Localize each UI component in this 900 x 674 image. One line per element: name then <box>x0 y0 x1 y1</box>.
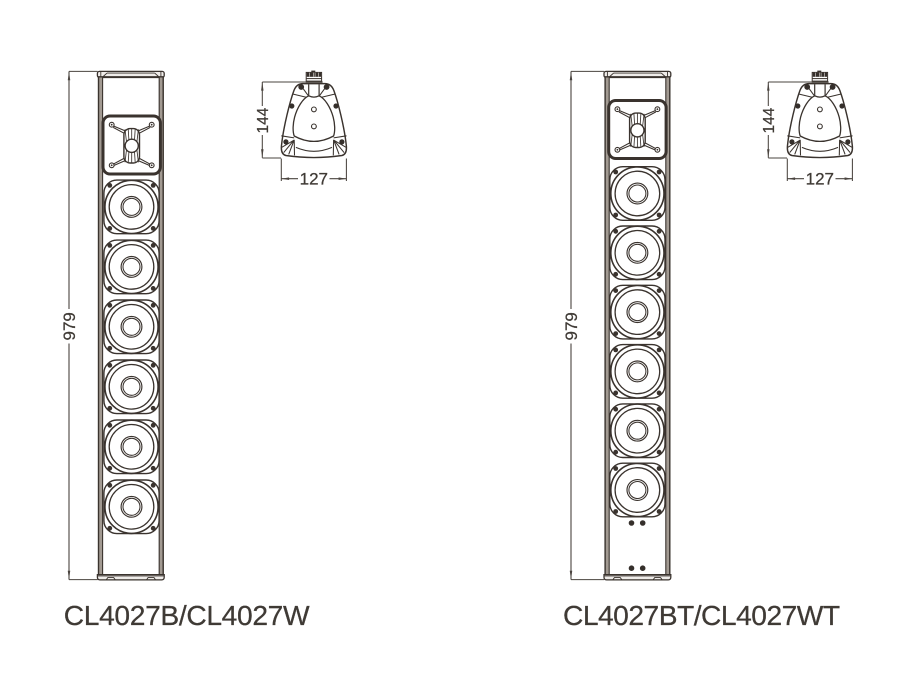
svg-text:CL4027B/CL4027W: CL4027B/CL4027W <box>64 599 310 631</box>
svg-text:979: 979 <box>60 312 79 340</box>
svg-text:CL4027BT/CL4027WT: CL4027BT/CL4027WT <box>563 599 840 631</box>
svg-text:979: 979 <box>562 312 581 340</box>
